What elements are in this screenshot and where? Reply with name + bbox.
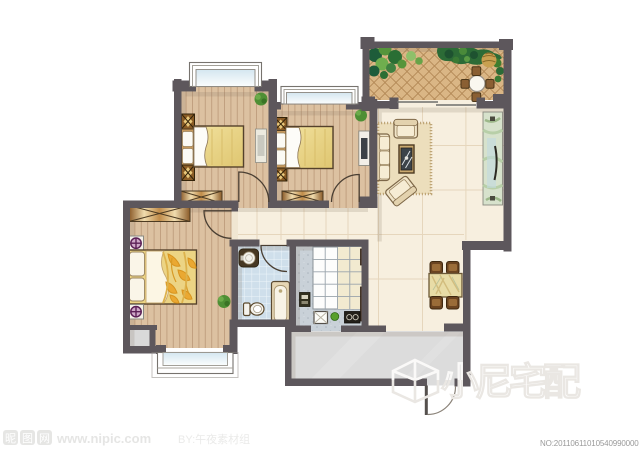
- svg-text:图: 图: [22, 432, 33, 445]
- svg-text:网: 网: [39, 433, 50, 445]
- svg-text:昵: 昵: [5, 432, 16, 445]
- svg-text:NO:20110611010540990000: NO:20110611010540990000: [540, 439, 639, 448]
- svg-text:BY:午夜素材组: BY:午夜素材组: [178, 432, 250, 446]
- svg-text:www.nipic.com: www.nipic.com: [56, 431, 151, 446]
